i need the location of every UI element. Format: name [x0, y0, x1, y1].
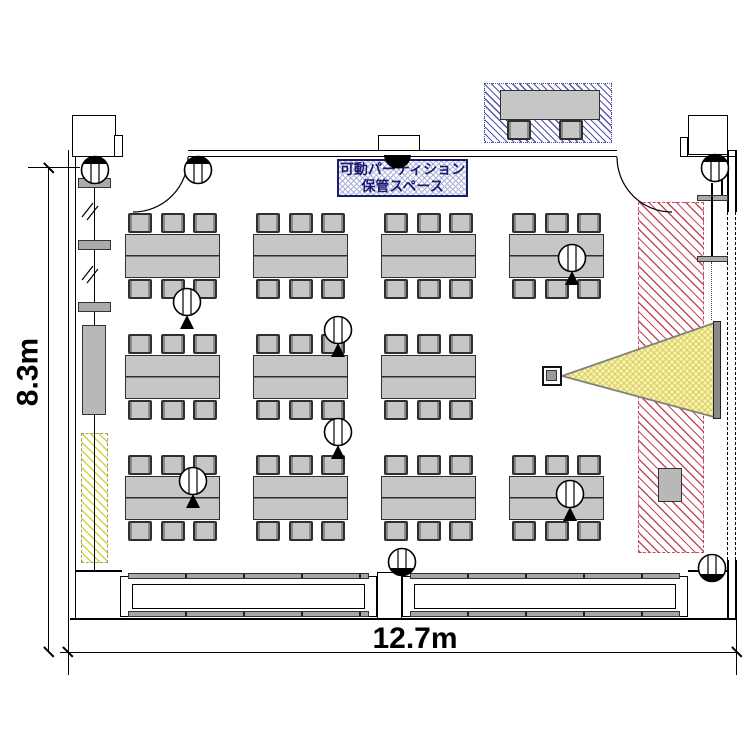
- window-sash: [410, 611, 680, 617]
- bottom-wall-inner-left: [76, 570, 122, 572]
- dim-width-label: 12.7m: [330, 622, 500, 654]
- chair: [321, 521, 345, 541]
- chair: [161, 213, 185, 233]
- chair: [193, 213, 217, 233]
- partition-storage-line2: 保管スペース: [339, 178, 466, 195]
- wall-speaker-symbol: [384, 544, 420, 580]
- chair: [512, 455, 536, 475]
- chair: [384, 279, 408, 299]
- chair: [577, 455, 601, 475]
- track-rail: [711, 183, 713, 256]
- projection-screen: [713, 321, 721, 419]
- chair: [321, 213, 345, 233]
- ceiling-speaker-symbol: [320, 414, 356, 464]
- window-unit-2-inner: [414, 584, 676, 609]
- ceiling-speaker-symbol: [552, 476, 588, 526]
- chair: [384, 334, 408, 354]
- chair: [128, 334, 152, 354]
- projector-lens: [546, 370, 557, 381]
- chair: [545, 213, 569, 233]
- chair: [507, 120, 531, 140]
- window-sash: [128, 611, 369, 617]
- chair: [256, 455, 280, 475]
- chair: [417, 334, 441, 354]
- dim-height-label: 8.3m: [12, 330, 42, 415]
- wall-sensor-icon: [384, 154, 412, 170]
- chair: [289, 334, 313, 354]
- meeting-table: [125, 355, 220, 399]
- top-right-duct-step: [680, 137, 688, 157]
- chair: [321, 279, 345, 299]
- chair: [256, 213, 280, 233]
- chair: [384, 521, 408, 541]
- chair: [512, 213, 536, 233]
- chair: [417, 213, 441, 233]
- door-swing-right: [612, 157, 682, 217]
- chair: [512, 521, 536, 541]
- wall-speaker-symbol: [694, 550, 730, 586]
- right-wall-outer: [735, 560, 737, 620]
- chair: [161, 334, 185, 354]
- meeting-room-floorplan: 可動パーティション 保管スペース 8.3m: [0, 0, 750, 750]
- side-cabinet: [82, 325, 106, 415]
- chair: [417, 521, 441, 541]
- window-sash: [128, 573, 369, 579]
- chair: [256, 279, 280, 299]
- meeting-table: [381, 476, 476, 520]
- meeting-table: [125, 234, 220, 278]
- chair: [289, 213, 313, 233]
- chair: [161, 521, 185, 541]
- glazing-mark: [80, 200, 104, 222]
- chair: [449, 213, 473, 233]
- chair: [128, 400, 152, 420]
- chair: [449, 279, 473, 299]
- chair: [256, 521, 280, 541]
- wall-speaker-symbol: [180, 152, 216, 188]
- top-left-duct: [72, 115, 116, 157]
- ceiling-speaker-symbol: [320, 312, 356, 362]
- chair: [384, 213, 408, 233]
- ceiling-speaker-symbol: [554, 240, 590, 290]
- chair: [449, 455, 473, 475]
- meeting-table: [381, 355, 476, 399]
- chair: [512, 279, 536, 299]
- chair: [128, 521, 152, 541]
- chair: [128, 279, 152, 299]
- dim-ext-top-left: [28, 167, 80, 168]
- chair: [289, 521, 313, 541]
- right-wall-inner-dashed: [727, 212, 728, 560]
- chair: [128, 213, 152, 233]
- chair: [289, 400, 313, 420]
- dim-ext-bottom-right: [736, 620, 737, 675]
- chair: [545, 455, 569, 475]
- chair: [417, 400, 441, 420]
- chair: [449, 400, 473, 420]
- meeting-table: [253, 476, 348, 520]
- chair: [289, 279, 313, 299]
- ceiling-speaker-symbol: [175, 463, 211, 513]
- meeting-table: [381, 234, 476, 278]
- chair: [417, 455, 441, 475]
- bottom-wall-outer: [70, 618, 736, 620]
- top-right-duct: [688, 115, 728, 155]
- left-wall: [68, 150, 76, 620]
- top-left-duct-step: [114, 135, 123, 157]
- chair: [256, 334, 280, 354]
- chair: [384, 455, 408, 475]
- wall-speaker-symbol: [697, 150, 733, 186]
- chair: [384, 400, 408, 420]
- reception-table: [500, 90, 600, 120]
- chair: [193, 334, 217, 354]
- storage-box-in-zone: [658, 468, 682, 502]
- dim-line-height: [48, 168, 49, 652]
- wall-speaker-symbol: [77, 152, 113, 188]
- chair: [449, 521, 473, 541]
- track-bracket: [697, 256, 728, 262]
- chair: [577, 213, 601, 233]
- glazing-mark: [80, 263, 104, 285]
- right-wall-outer: [735, 150, 737, 212]
- top-center-pillar: [378, 135, 420, 151]
- ceiling-speaker-symbol: [169, 284, 205, 334]
- track-rail-dotted: [711, 262, 712, 320]
- right-wall-outer-dashed: [735, 212, 736, 560]
- track-bracket: [697, 195, 728, 201]
- dim-ext-bottom-left: [68, 578, 69, 675]
- chair: [256, 400, 280, 420]
- window-frame: [78, 240, 111, 250]
- chair: [289, 455, 313, 475]
- projection-beam: [561, 320, 715, 420]
- chair: [161, 400, 185, 420]
- chair: [128, 455, 152, 475]
- meeting-table: [253, 234, 348, 278]
- chair: [417, 279, 441, 299]
- chair: [559, 120, 583, 140]
- window-frame: [78, 302, 111, 312]
- chair: [449, 334, 473, 354]
- window-sash: [410, 573, 680, 579]
- chair: [193, 521, 217, 541]
- window-unit-1-inner: [132, 584, 365, 609]
- chair: [193, 400, 217, 420]
